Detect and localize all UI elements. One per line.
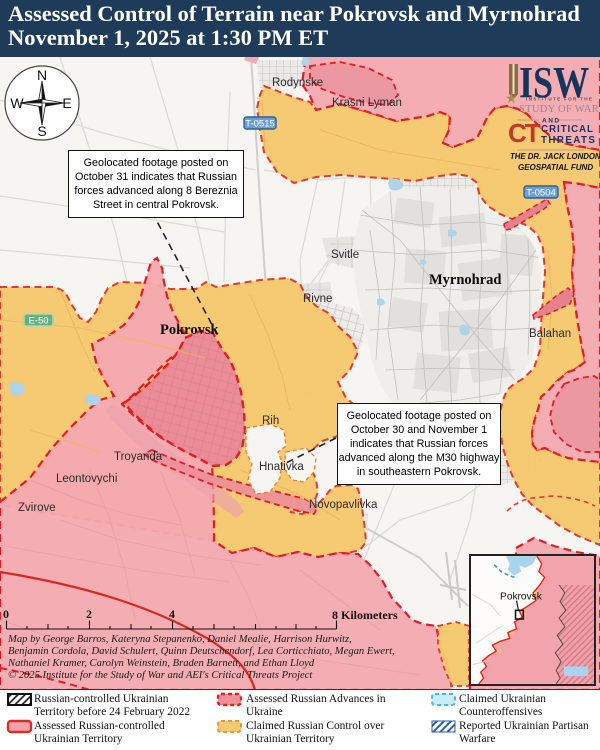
svg-text:Novopavlivka: Novopavlivka xyxy=(309,499,378,511)
svg-text:Ukraine: Ukraine xyxy=(246,706,283,718)
svg-text:Rih: Rih xyxy=(262,415,279,427)
svg-text:INSTITUTE FOR THE: INSTITUTE FOR THE xyxy=(526,97,593,102)
svg-text:W: W xyxy=(10,95,24,111)
svg-text:GEOSPATIAL FUND: GEOSPATIAL FUND xyxy=(518,163,593,172)
svg-text:★: ★ xyxy=(505,90,518,106)
svg-text:Troyanda: Troyanda xyxy=(114,451,163,463)
svg-text:N: N xyxy=(37,67,47,83)
svg-text:2: 2 xyxy=(86,607,92,621)
svg-text:E-50: E-50 xyxy=(28,316,48,327)
svg-text:Zvirove: Zvirove xyxy=(18,502,56,514)
svg-text:Territory before 24 February 2: Territory before 24 February 2022 xyxy=(34,706,190,718)
svg-text:Rodynske: Rodynske xyxy=(272,77,323,89)
svg-text:T-0504: T-0504 xyxy=(526,188,556,199)
svg-text:E: E xyxy=(62,95,71,111)
svg-text:Warfare: Warfare xyxy=(459,733,495,745)
svg-text:CRITICAL: CRITICAL xyxy=(541,124,594,135)
svg-text:THE DR. JACK LONDON: THE DR. JACK LONDON xyxy=(510,152,600,161)
svg-text:CT: CT xyxy=(508,118,541,148)
svg-text:Assessed Russian Advances in: Assessed Russian Advances in xyxy=(246,693,386,705)
svg-text:Svitle: Svitle xyxy=(331,249,359,261)
svg-text:Reported Ukrainian Partisan: Reported Ukrainian Partisan xyxy=(459,720,589,732)
svg-text:Myrnohrad: Myrnohrad xyxy=(429,272,502,288)
svg-text:Krasni Lyman: Krasni Lyman xyxy=(332,97,402,109)
svg-text:Rivne: Rivne xyxy=(303,293,332,305)
svg-text:Counteroffensives: Counteroffensives xyxy=(459,706,543,718)
svg-text:STUDY OF WAR: STUDY OF WAR xyxy=(519,104,599,115)
svg-text:THREATS: THREATS xyxy=(541,135,596,146)
svg-text:0: 0 xyxy=(3,607,9,621)
svg-text:Pokrovsk: Pokrovsk xyxy=(160,322,219,338)
svg-text:Assessed Russian-controlled: Assessed Russian-controlled xyxy=(34,720,165,732)
svg-text:T-0515: T-0515 xyxy=(245,119,275,130)
svg-text:Ukrainian Territory: Ukrainian Territory xyxy=(34,733,123,745)
svg-text:Claimed Ukrainian: Claimed Ukrainian xyxy=(459,693,546,705)
svg-text:Hnativka: Hnativka xyxy=(259,461,304,473)
svg-text:Ukrainian Territory: Ukrainian Territory xyxy=(246,733,335,745)
svg-text:S: S xyxy=(37,123,46,139)
svg-text:Balahan: Balahan xyxy=(529,328,571,340)
svg-text:Pokrovsk: Pokrovsk xyxy=(500,592,543,603)
svg-text:4: 4 xyxy=(169,607,175,621)
svg-text:8 Kilometers: 8 Kilometers xyxy=(332,608,398,622)
svg-text:Claimed Russian Control over: Claimed Russian Control over xyxy=(246,720,384,732)
svg-text:Russian-controlled Ukrainian: Russian-controlled Ukrainian xyxy=(34,693,169,705)
svg-text:Leontovychi: Leontovychi xyxy=(56,473,117,485)
